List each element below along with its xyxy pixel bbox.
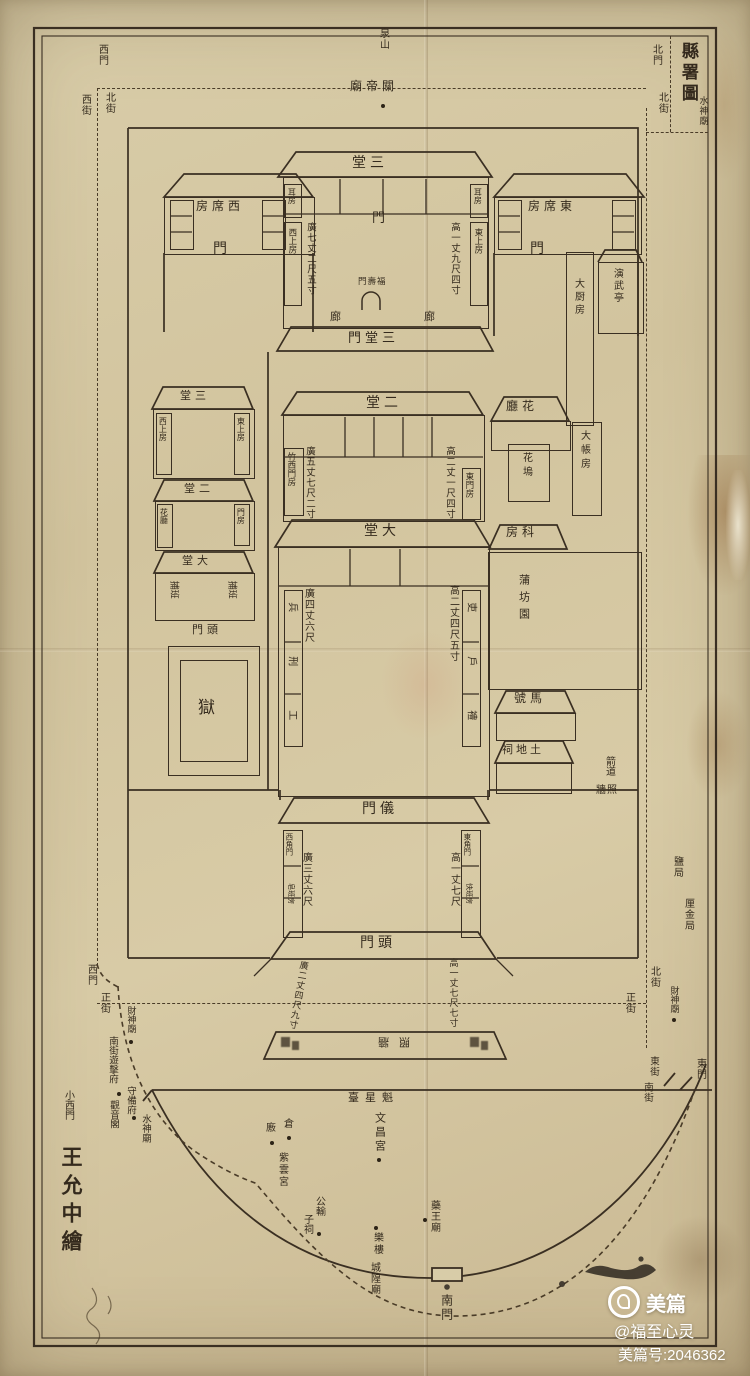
street-curves-dashed [97, 964, 694, 1316]
temple-dot [129, 1040, 133, 1044]
east-guest-pillar [612, 200, 636, 250]
label-east-gate-room: 東門房 [464, 472, 473, 498]
label-datang: 大堂 [364, 524, 400, 539]
label-annex-ertang: 二堂 [184, 483, 214, 495]
ink-blots [444, 1256, 656, 1289]
label-clerks-room: 科房 [506, 526, 538, 539]
label-annex-flower-hall: 花廳 [159, 508, 167, 524]
label-east-gate: 東門 [694, 1058, 705, 1080]
label-caishen-temple-w: 財神廟 [125, 1006, 134, 1033]
temple-dot [672, 1018, 676, 1022]
label-north-gate: 北門 [650, 44, 661, 66]
label-north-street-left: 北街 [103, 92, 114, 114]
label-ear-room-w: 耳房 [287, 188, 295, 204]
label-east-corner-gate: 東角門 [463, 833, 471, 856]
label-screen-wall-small: 照牆 [596, 786, 618, 797]
label-west-corner-gate: 西角門 [285, 833, 293, 856]
margin-scribble [87, 1288, 111, 1344]
label-kitchen: 大厨房 [572, 278, 583, 317]
label-likin-bureau: 厘金局 [682, 898, 693, 931]
label-west-guest: 西席房 [196, 200, 244, 213]
dim-yimen-width: 廣三丈六尺 [300, 852, 311, 907]
label-annex-gate-room: 門房 [236, 508, 244, 524]
label-caishen-temple-e: 財神廟 [668, 986, 677, 1013]
scanned-yamen-map: 縣署圖 水神廟 北門 北街 西門 北街 西街 泉山 關帝廟 三堂 耳房 西上房 … [0, 0, 750, 1376]
label-office-gong: 工 [286, 710, 297, 720]
label-office-li: 吏 [465, 602, 476, 612]
label-guandi-temple: 關帝廟 [350, 80, 398, 93]
label-prison: 獄 [198, 700, 215, 718]
illegible-dim-text [470, 1037, 479, 1047]
dim-ertang-height: 高二丈一尺四寸 [444, 446, 454, 520]
east-guest-pillar [498, 200, 522, 250]
label-earth-god-shrine: 土地祠 [502, 744, 544, 756]
label-wenchang-palace: 文昌宮 [374, 1112, 386, 1154]
label-annex-west-upper: 西上房 [158, 417, 166, 441]
west-guest-pillar [262, 200, 286, 250]
label-opera-tower: 樂樓 [371, 1232, 382, 1256]
label-hall-door: 門 [372, 212, 385, 226]
label-chenghuang-temple: 城隍廟 [368, 1262, 379, 1295]
temple-dot [287, 1136, 291, 1140]
label-archery-lane: 箭道 [603, 756, 614, 776]
label-salt-bureau: 鹽局 [671, 856, 682, 878]
label-zici: 子祠 [301, 1214, 312, 1234]
temple-dot [377, 1158, 381, 1162]
label-gongshu: 公輸 [313, 1196, 324, 1216]
dim-santang-width: 廣七丈二尺五寸 [305, 222, 315, 296]
label-yimen: 儀門 [362, 802, 398, 817]
label-west-gate: 西門 [85, 964, 96, 986]
label-drill-pavilion: 演武亭 [611, 268, 622, 304]
label-accounts-room: 大帳房 [578, 430, 589, 472]
label-ziyun-palace: 紫雲宮 [276, 1152, 287, 1188]
dim-ertang-width: 廣五丈七尺二寸 [304, 446, 314, 520]
map-subtitle: 水神廟 [697, 96, 706, 126]
watermark-handle: @福至心灵 [614, 1318, 694, 1342]
temple-dot [374, 1226, 378, 1230]
label-santang: 三堂 [352, 156, 388, 171]
watermark-brand: 美篇 [646, 1288, 686, 1317]
label-flower-bed: 花塢 [520, 452, 531, 480]
title-box-line [646, 132, 708, 133]
label-shoubei-office: 守備府 [125, 1086, 135, 1115]
temple-dot [381, 104, 385, 108]
label-granary2: 廒 [266, 1124, 276, 1135]
label-corridor-right: 廊 [424, 311, 435, 323]
label-north-street-right: 北街 [656, 92, 667, 114]
label-fushou-gate: 福壽門 [358, 278, 387, 287]
watermark-id: 美篇号:2046362 [618, 1344, 726, 1365]
dim-datang-height: 高二丈四尺五寸 [447, 585, 458, 662]
label-pufang-garden: 蒲坊園 [518, 574, 530, 625]
label-hill: 泉山 [377, 28, 388, 50]
label-east-upper: 東上房 [473, 228, 482, 254]
west-guest-pillar [170, 200, 194, 250]
label-ear-room-e: 耳房 [473, 188, 481, 204]
west-street-line [97, 88, 98, 966]
dim-santang-height: 高一丈九尺四寸 [449, 222, 459, 296]
temple-dot [132, 1116, 136, 1120]
label-office-hu: 戶 [465, 656, 476, 666]
label-south-street: 南街 [642, 1082, 652, 1103]
label-west-upper: 西上房 [287, 228, 296, 254]
temple-dot [270, 1141, 274, 1145]
temple-dot [117, 1092, 121, 1096]
illegible-dim-text [481, 1041, 488, 1050]
dim-toumen-height: 高一丈七尺七寸 [447, 958, 456, 1028]
map-title: 縣署圖 [678, 42, 696, 105]
illegible-dim-text [292, 1041, 299, 1050]
label-corridor-left: 廊 [330, 311, 341, 323]
dim-yimen-height: 高一丈七尺 [448, 852, 459, 907]
label-toumen-small: 頭門 [192, 624, 222, 636]
label-main-street-e: 正街 [623, 992, 634, 1014]
label-granary: 倉 [284, 1120, 294, 1131]
label-stable: 馬號 [514, 692, 546, 705]
label-ertang: 二堂 [366, 396, 402, 411]
label-east-guest-gate: 門 [530, 242, 544, 257]
label-west-gate-top: 西門 [96, 44, 107, 66]
east-street-line [646, 108, 647, 1048]
label-constables-e: 捕班 [226, 581, 235, 599]
label-annex-datang: 大堂 [182, 555, 212, 567]
label-zhuxi-gate-room: 竹西門房 [286, 452, 295, 486]
label-office-xing: 刑 [286, 656, 297, 666]
label-garrison: 南街遊擊府 [107, 1036, 117, 1084]
west-wing-rooms [284, 590, 303, 747]
temple-dot [317, 1232, 321, 1236]
garden-enclosure [488, 552, 642, 690]
label-west-street: 西街 [79, 94, 90, 116]
label-annex-santang: 三堂 [180, 390, 210, 402]
label-east-guest: 東席房 [528, 200, 576, 213]
title-box-line [670, 36, 671, 132]
south-street-line [97, 1003, 646, 1004]
label-small-west-gate: 小西門 [62, 1090, 73, 1120]
label-toumen: 頭門 [360, 936, 396, 951]
label-west-runners: 皂班房 [287, 883, 294, 904]
east-wing-rooms [462, 590, 481, 747]
label-yaowang-temple: 藥王廟 [428, 1200, 439, 1233]
label-office-bing: 兵 [286, 602, 297, 612]
label-constables-w: 捕班 [168, 581, 177, 599]
label-santang-gate: 三堂門 [348, 332, 399, 346]
label-annex-east-upper: 東上房 [236, 417, 244, 441]
label-east-runners: 快班房 [465, 883, 472, 904]
label-screen-wall: 照牆 [368, 1036, 410, 1048]
temple-dot [423, 1218, 427, 1222]
dim-datang-width: 廣四丈六尺 [302, 588, 313, 643]
label-east-street: 東街 [648, 1056, 658, 1077]
label-west-guest-gate: 門 [213, 242, 227, 257]
label-north-street-se: 北街 [648, 966, 659, 988]
meipian-logo-icon [608, 1286, 640, 1318]
illegible-dim-text [281, 1037, 290, 1047]
cartographer-credit: 王允中繪 [60, 1146, 82, 1258]
label-water-god-temple: 水神廟 [140, 1114, 150, 1143]
south-semicircle [143, 1064, 712, 1281]
label-guanyin-pavilion: 觀音閣 [108, 1100, 118, 1129]
stable-box [496, 713, 576, 741]
label-kuixing-terrace: 魁星臺 [348, 1092, 399, 1104]
earth-god-box [496, 763, 572, 794]
label-main-street-w: 正街 [98, 992, 109, 1014]
label-office-li3: 禮 [465, 710, 476, 720]
label-south-gate: 南門 [440, 1294, 453, 1322]
label-flower-hall: 花廳 [506, 400, 538, 413]
